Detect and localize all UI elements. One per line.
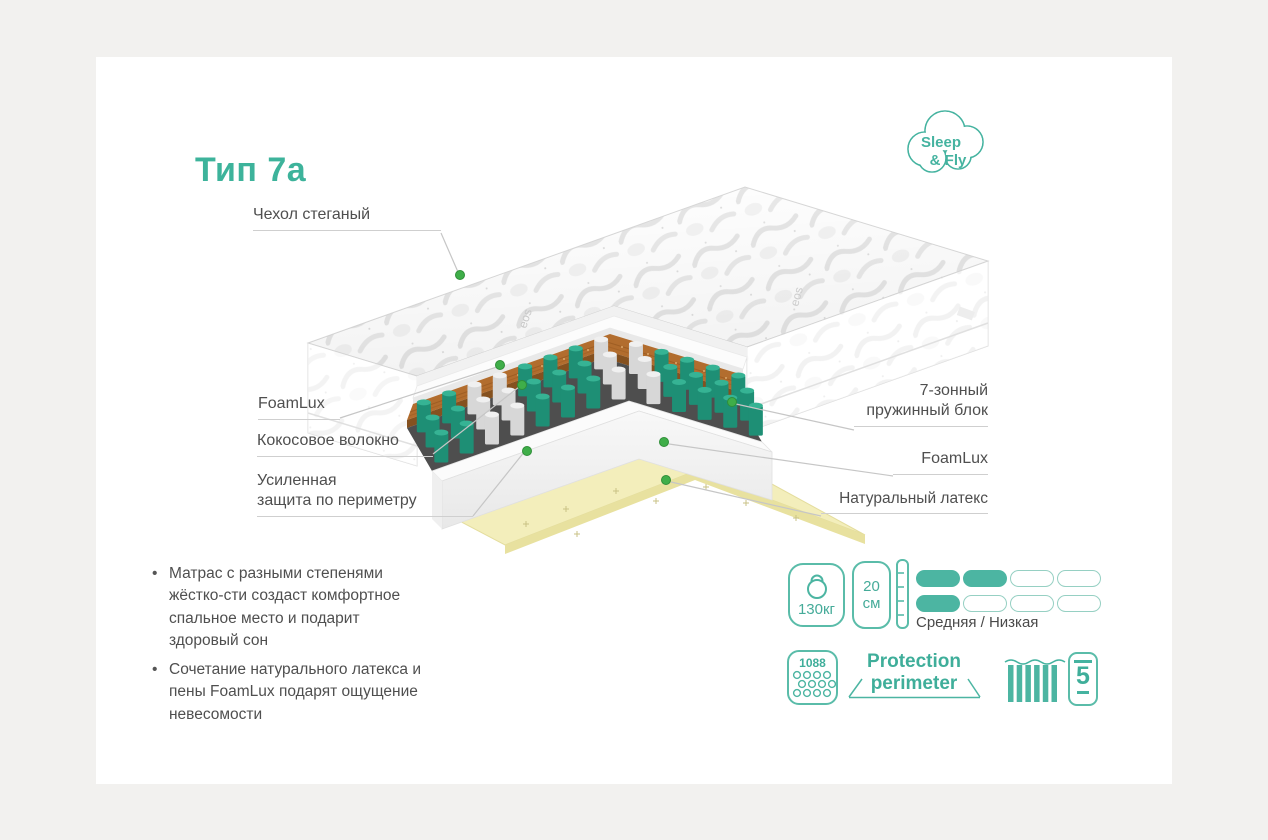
ruler-icon: [896, 559, 909, 629]
label-cover: Чехол стеганый: [253, 205, 441, 231]
firmness-row-1: [916, 570, 1101, 587]
page-title: Тип 7а: [195, 151, 306, 190]
firmness-scale: [916, 570, 1101, 620]
label-coconut: Кокосовое волокно: [257, 431, 433, 457]
feature-bullet: Матрас с разными степенями жёстко-сти со…: [152, 563, 422, 653]
height-icon: 20 см: [852, 561, 891, 629]
warranty-5-icon: 5: [1068, 652, 1098, 706]
coconut-marker: [518, 381, 527, 390]
springs-count-icon: 1088: [787, 650, 838, 705]
spring-bars-icon: [1005, 660, 1065, 702]
brand-line2: & Fly: [930, 152, 967, 169]
pocket-springs-icon: [794, 672, 836, 697]
content-panel: eos eos: [96, 57, 1172, 784]
label-spring-block: 7-зонный пружинный блок: [854, 381, 988, 427]
foamlux-right-marker: [660, 438, 669, 447]
feature-list: Матрас с разными степенями жёстко-сти со…: [152, 563, 422, 732]
firmness-pill-empty: [1010, 570, 1054, 587]
firmness-label: Средняя / Низкая: [916, 614, 1136, 631]
firmness-pill-empty: [1010, 595, 1054, 612]
brand-logo: Sleep & Fly: [908, 111, 983, 172]
perimeter-marker: [523, 447, 532, 456]
label-foamlux-left: FoamLux: [258, 394, 340, 420]
protection-perimeter-text: Protection perimeter: [841, 651, 987, 695]
max-weight-icon: 130кг: [788, 563, 845, 627]
height-unit: см: [863, 595, 881, 612]
firmness-pill-empty: [1057, 570, 1101, 587]
height-value: 20: [863, 578, 881, 595]
firmness-pill-filled: [916, 570, 960, 587]
label-latex: Натуральный латекс: [821, 489, 988, 514]
springs-marker: [728, 398, 737, 407]
latex-marker: [662, 476, 671, 485]
warranty-years: 5: [1076, 663, 1090, 691]
infographic: eos eos: [0, 0, 1268, 840]
foamlux-left-marker: [496, 361, 505, 370]
firmness-pill-filled: [916, 595, 960, 612]
firmness-pill-empty: [1057, 595, 1101, 612]
kettlebell-icon: [802, 572, 832, 600]
firmness-pill-filled: [963, 570, 1007, 587]
feature-bullet: Сочетание натурального латекса и пены Fo…: [152, 659, 422, 726]
label-perimeter: Усиленная защита по периметру: [257, 471, 473, 517]
springs-count-value: 1088: [799, 656, 826, 670]
max-weight-value: 130кг: [798, 601, 835, 618]
brand-line1: Sleep: [921, 134, 961, 151]
firmness-row-2: [916, 595, 1101, 612]
cover-marker: [456, 271, 465, 280]
label-foamlux-right: FoamLux: [893, 449, 988, 475]
firmness-pill-empty: [963, 595, 1007, 612]
